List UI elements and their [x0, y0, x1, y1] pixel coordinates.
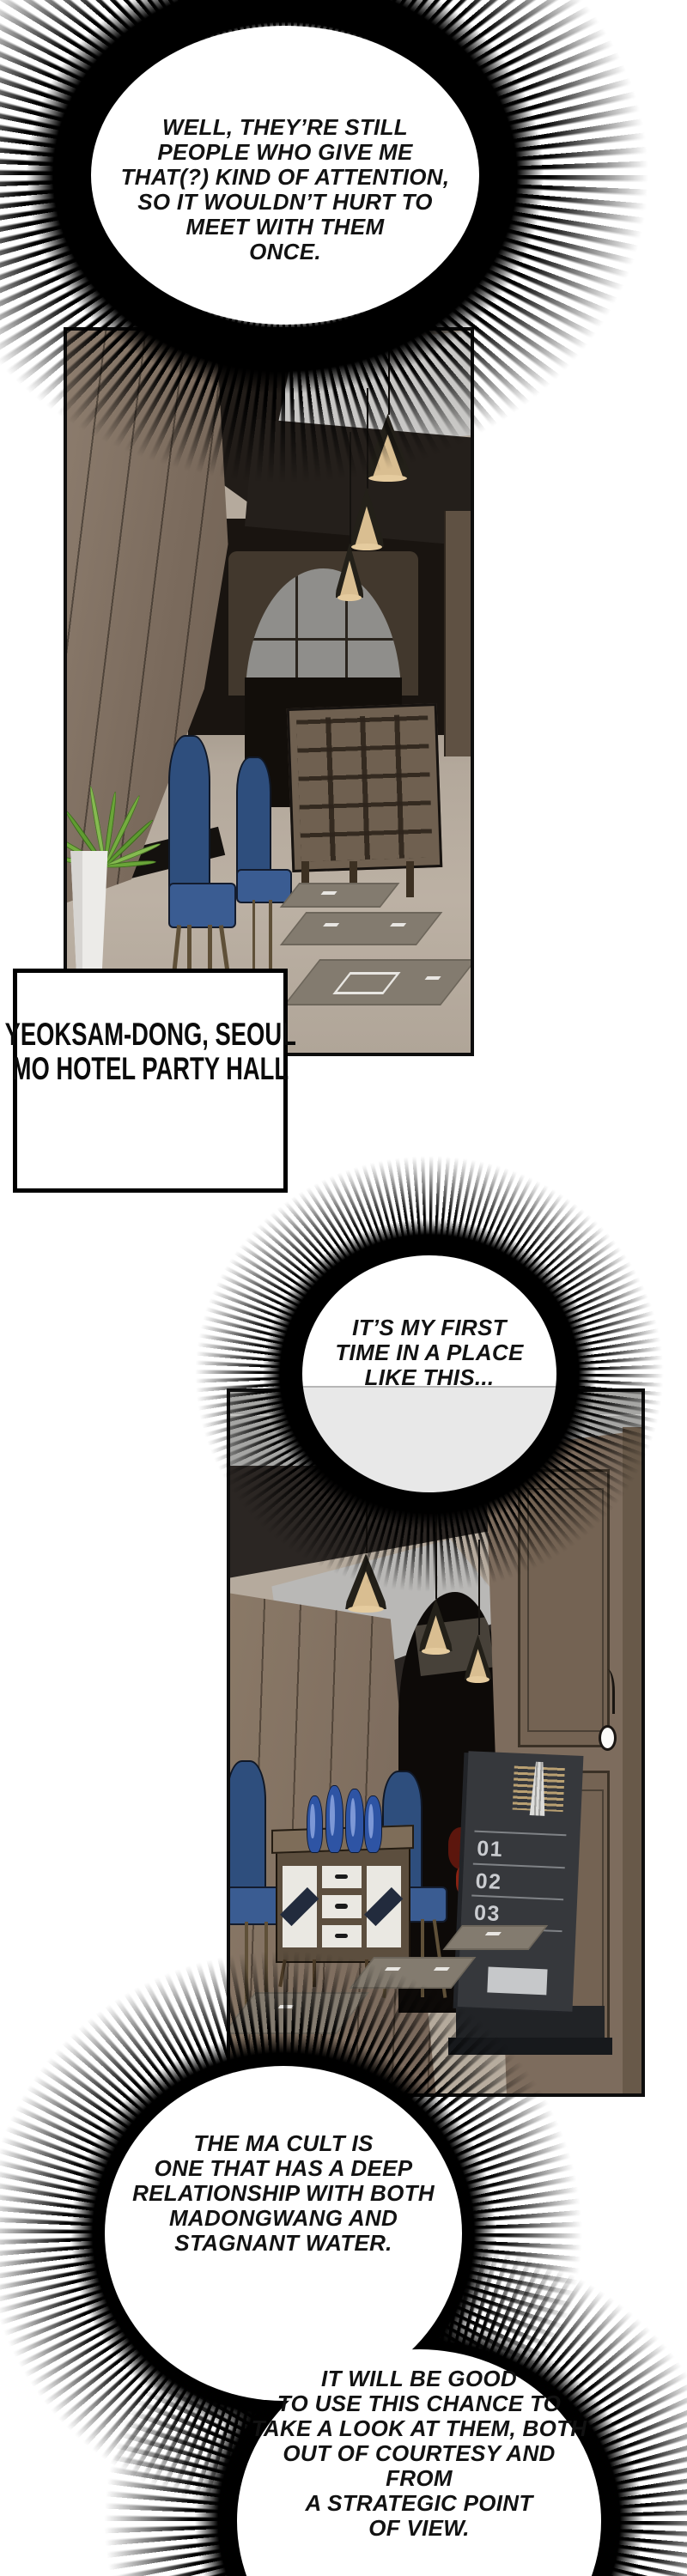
floor-mat: [280, 912, 443, 945]
mat-detail: [390, 923, 406, 927]
blue-porcelain-vase: [307, 1795, 323, 1853]
screen-grid-pattern: [296, 714, 432, 862]
chair-seat: [168, 883, 236, 927]
sign-divider: [474, 1831, 566, 1837]
lamp-shade-inner: [337, 561, 362, 598]
speech-line: THAT(?) KIND OF ATTENTION,: [113, 165, 457, 190]
sconce-light: [599, 1725, 617, 1751]
blue-porcelain-vase: [325, 1785, 343, 1854]
speech-line: IT WILL BE GOOD: [247, 2366, 591, 2391]
vase-highlight: [350, 1798, 356, 1838]
mat-detail: [324, 923, 340, 927]
sign-item: 03: [473, 1902, 501, 1924]
lamp-shade: [419, 1599, 452, 1652]
chair-back: [236, 756, 271, 883]
chair-leg: [269, 900, 272, 976]
lamp-shade-inner: [422, 1615, 449, 1651]
blue-porcelain-vase: [345, 1789, 364, 1854]
lamp-shade: [336, 543, 364, 598]
sign-divider: [472, 1862, 564, 1868]
floor-mat: [279, 883, 399, 908]
speech-line: LIKE THIS...: [301, 1365, 558, 1390]
speech-line: PEOPLE WHO GIVE ME: [113, 140, 457, 165]
speech-line: IT’S MY FIRST: [301, 1315, 558, 1340]
mat-detail: [320, 891, 337, 895]
speech-text: IT WILL BE GOOD TO USE THIS CHANCE TO TA…: [247, 2366, 591, 2541]
sign-divider: [471, 1894, 563, 1900]
speech-line: OUT OF COURTESY AND FROM: [247, 2441, 591, 2491]
hotel-logo-icon: [512, 1765, 564, 1811]
speech-line: TAKE A LOOK AT THEM, BOTH: [247, 2416, 591, 2441]
wall-sconce-icon: [600, 1669, 615, 1714]
lamp-shade-inner: [467, 1649, 489, 1680]
speech-line: WELL, THEY’RE STILL: [113, 115, 457, 140]
chair-seat: [236, 869, 292, 903]
chair-leg: [252, 900, 256, 976]
speech-line: OF VIEW.: [247, 2516, 591, 2541]
vase-highlight: [330, 1795, 335, 1836]
sign-item: 02: [475, 1870, 502, 1893]
blue-chair: [236, 756, 289, 981]
chair-back: [168, 735, 210, 902]
speech-text: WELL, THEY’RE STILL PEOPLE WHO GIVE ME T…: [113, 115, 457, 264]
speech-text: THE MA CULT IS ONE THAT HAS A DEEP RELAT…: [112, 2131, 455, 2256]
drawer-pull: [335, 1904, 348, 1908]
speech-line: MADONGWANG AND: [112, 2206, 455, 2231]
lamp-shade: [465, 1635, 491, 1680]
window-mullion: [295, 568, 298, 696]
bubble-translucent-tint: [302, 1386, 556, 1492]
arched-window: [228, 551, 418, 696]
diamond-ornament: [280, 1887, 319, 1927]
speech-line: TIME IN A PLACE: [301, 1340, 558, 1365]
mat-detail: [332, 971, 401, 993]
lamp-glow: [466, 1676, 489, 1683]
mat-detail: [425, 975, 441, 979]
potted-plant: [64, 619, 168, 879]
chair-back: [227, 1760, 266, 1903]
tower-glyph-icon: [526, 1761, 550, 1816]
drawer-pull: [335, 1874, 348, 1879]
speech-line: ONE THAT HAS A DEEP: [112, 2156, 455, 2181]
speech-line: ONCE.: [113, 240, 457, 264]
speech-line: SO IT WOULDN’T HURT TO: [113, 190, 457, 215]
speech-text: IT’S MY FIRST TIME IN A PLACE LIKE THIS.…: [301, 1315, 558, 1390]
sign-item: 01: [476, 1838, 503, 1861]
comic-page: 01 02 03: [0, 0, 687, 2576]
blue-porcelain-vase: [364, 1795, 382, 1853]
speech-line: MEET WITH THEM: [113, 215, 457, 240]
caption-line: YEOKSAM-DONG, SEOUL: [4, 1018, 295, 1052]
speech-line: RELATIONSHIP WITH BOTH: [112, 2181, 455, 2206]
console-drawer: [322, 1895, 362, 1917]
console-drawer: [322, 1866, 362, 1888]
right-wall: [444, 511, 472, 756]
speech-line: A STRATEGIC POINT: [247, 2491, 591, 2516]
speech-line: THE MA CULT IS: [112, 2131, 455, 2156]
panelled-screen: [286, 703, 442, 872]
caption-line: MO HOTEL PARTY HALL: [12, 1052, 289, 1086]
diamond-ornament: [364, 1887, 404, 1927]
screen-leg: [406, 861, 414, 897]
speech-line: TO USE THIS CHANCE TO: [247, 2391, 591, 2416]
speech-line: STAGNANT WATER.: [112, 2231, 455, 2256]
vase-highlight: [310, 1804, 314, 1839]
window-mullion: [246, 638, 401, 641]
vase-highlight: [368, 1804, 374, 1839]
arch-window-glass: [246, 568, 401, 696]
